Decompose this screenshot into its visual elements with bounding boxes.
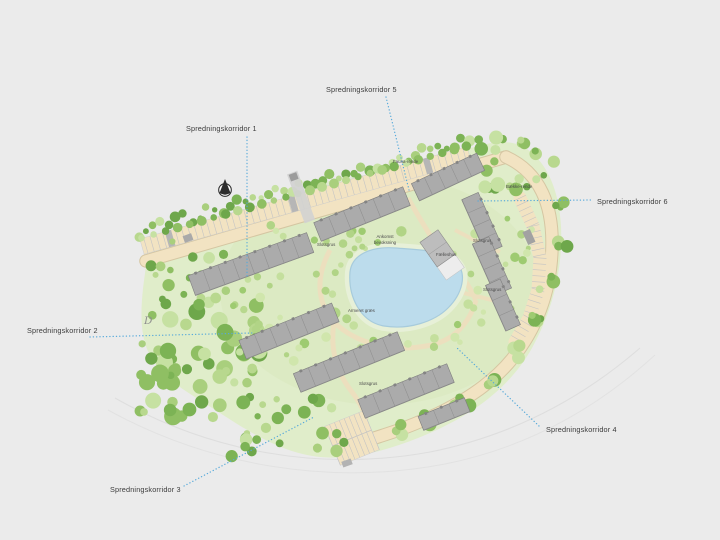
tree: [232, 194, 242, 204]
tree: [316, 427, 329, 440]
tree: [503, 261, 509, 267]
tree: [264, 190, 273, 199]
tree: [245, 202, 255, 212]
corridor-1-label: Spredningskorridor 1: [186, 124, 257, 133]
tree: [561, 240, 574, 253]
tree: [213, 398, 227, 412]
common-house-label: Fælleshus: [436, 252, 457, 257]
tree: [239, 287, 246, 294]
tree: [233, 206, 242, 215]
tree: [160, 343, 176, 359]
tree: [159, 296, 166, 303]
tree: [226, 450, 238, 462]
tree: [462, 141, 471, 150]
corridor-3-label: Spredningskorridor 3: [110, 485, 181, 494]
tree: [321, 332, 331, 342]
reinforced-grass-label: Armeret græs: [348, 308, 376, 313]
tree: [208, 412, 218, 422]
tree: [145, 393, 161, 409]
tree: [450, 333, 459, 342]
north-arrow-icon: [219, 179, 232, 196]
gravel-label: Slotsgrus: [317, 242, 336, 247]
tree: [434, 143, 441, 150]
gravel-label: Slotsgrus: [483, 287, 502, 292]
tree: [438, 149, 446, 157]
tree: [349, 321, 358, 330]
tree: [324, 169, 334, 179]
tree: [240, 442, 250, 452]
tree: [240, 306, 247, 313]
tree: [217, 324, 234, 341]
tree: [230, 378, 238, 386]
tree: [210, 293, 221, 304]
tree: [210, 214, 217, 221]
tree: [149, 221, 157, 229]
tree: [164, 404, 177, 417]
tree: [230, 303, 237, 310]
tree: [470, 304, 477, 311]
tree: [182, 364, 192, 374]
tree: [222, 287, 231, 296]
tree: [276, 439, 284, 447]
tree: [532, 147, 539, 154]
tree: [558, 196, 570, 208]
tree: [280, 233, 287, 240]
tree: [514, 174, 523, 183]
tree: [367, 170, 374, 177]
tree: [183, 403, 197, 417]
site-plan-svg: Spredningskorridor 1 Spredningskorridor …: [0, 0, 720, 540]
tree: [139, 340, 146, 347]
tree: [289, 356, 299, 366]
corridor-4-label: Spredningskorridor 4: [546, 425, 617, 434]
tree: [519, 256, 527, 264]
gravel-label: Slotsgrus: [473, 238, 492, 243]
tree: [136, 370, 146, 380]
tree: [219, 250, 228, 259]
tree: [276, 272, 284, 280]
tree: [261, 423, 271, 433]
tree: [162, 311, 178, 327]
gravel-label: Slotsgrus: [359, 381, 378, 386]
tree: [272, 412, 284, 424]
tree: [198, 347, 211, 360]
tree: [552, 202, 559, 209]
tree: [273, 228, 279, 234]
corridor-5-label: Spredningskorridor 5: [326, 85, 397, 94]
tree: [271, 185, 278, 192]
tree: [254, 413, 260, 419]
tree: [355, 173, 362, 180]
tree: [505, 216, 511, 222]
tree: [236, 395, 250, 409]
tree: [151, 365, 169, 383]
tree: [277, 315, 283, 321]
tree: [529, 312, 536, 319]
tree: [456, 134, 465, 143]
tree: [221, 209, 230, 218]
tree: [193, 299, 205, 311]
tree: [180, 319, 192, 331]
tree: [356, 162, 365, 171]
tree: [468, 271, 475, 278]
tree: [155, 217, 164, 226]
tree: [417, 143, 427, 153]
tree: [178, 209, 186, 217]
tree: [523, 249, 531, 257]
tree: [267, 283, 273, 289]
tree: [298, 406, 311, 419]
tree: [449, 145, 459, 155]
arrival-planting-label-2: bevoksning: [374, 240, 397, 245]
tree: [536, 285, 544, 293]
map-letter-d: D: [143, 315, 153, 327]
tree: [180, 291, 187, 298]
tree: [490, 145, 500, 155]
tree: [548, 156, 560, 168]
tree: [273, 396, 279, 402]
tree: [173, 223, 183, 233]
arrival-planting-label-1: Ankomst: [376, 234, 394, 239]
tree: [478, 180, 491, 193]
tree: [169, 238, 175, 244]
tree: [395, 419, 406, 430]
tree: [308, 394, 318, 404]
tree: [202, 203, 209, 210]
tree: [271, 197, 277, 203]
tree: [259, 401, 266, 408]
fauna-channel-label: Fauna-rende: [393, 159, 419, 164]
tree: [186, 220, 194, 228]
tree: [532, 175, 540, 183]
tree: [313, 443, 322, 452]
tree: [342, 314, 351, 323]
tree: [481, 309, 486, 314]
tree: [487, 375, 498, 386]
tree: [329, 179, 339, 189]
tree: [162, 227, 170, 235]
tree: [490, 177, 505, 192]
tree: [281, 404, 291, 414]
tree: [427, 153, 434, 160]
tree: [339, 438, 348, 447]
site-plan-page: Spredningskorridor 1 Spredningskorridor …: [0, 0, 720, 540]
tree: [510, 253, 519, 262]
tree: [255, 293, 265, 303]
tree: [427, 145, 434, 152]
tree: [317, 182, 327, 192]
tree: [162, 279, 174, 291]
tree: [454, 321, 461, 328]
tree: [153, 272, 159, 278]
tree: [355, 236, 362, 243]
tree: [212, 207, 217, 212]
tree: [359, 244, 365, 250]
tree: [396, 226, 406, 236]
tree: [404, 340, 412, 348]
tree: [252, 435, 261, 444]
tree: [150, 231, 157, 238]
tree: [313, 271, 320, 278]
tree: [284, 352, 289, 357]
tree: [247, 364, 257, 374]
tree: [188, 252, 198, 262]
corridor-2-label: Spredningskorridor 2: [27, 326, 98, 335]
tree: [145, 352, 157, 364]
tree: [540, 172, 547, 179]
tree: [249, 194, 256, 201]
tree: [358, 228, 365, 235]
tree: [322, 287, 330, 295]
tree: [477, 318, 485, 326]
tree: [547, 273, 555, 281]
tree: [197, 216, 207, 226]
tree: [295, 344, 302, 351]
tree: [167, 267, 174, 274]
tree: [489, 131, 503, 145]
tree: [430, 334, 439, 343]
tree: [517, 137, 524, 144]
tree: [212, 369, 227, 384]
tree: [146, 260, 157, 271]
tree: [266, 221, 275, 230]
tree: [332, 429, 341, 438]
tree: [377, 165, 387, 175]
tree: [352, 245, 358, 251]
tree: [305, 185, 315, 195]
tree: [490, 157, 498, 165]
tree: [342, 176, 350, 184]
tree: [143, 228, 149, 234]
tree: [430, 343, 438, 351]
tree: [338, 262, 344, 268]
corridor-6-label: Spredningskorridor 6: [597, 197, 668, 206]
tree: [329, 290, 336, 297]
tree: [473, 286, 482, 295]
tree: [339, 239, 347, 247]
tree: [330, 445, 342, 457]
tree: [346, 251, 354, 259]
tree: [140, 408, 148, 416]
tree: [193, 379, 208, 394]
tree: [156, 261, 166, 271]
tree: [282, 193, 289, 200]
tree: [327, 403, 336, 412]
tree: [332, 269, 339, 276]
tree: [203, 252, 215, 264]
tree: [242, 378, 252, 388]
tree: [513, 340, 525, 352]
tree: [138, 234, 145, 241]
tree: [257, 199, 267, 209]
tree: [195, 395, 208, 408]
stream-channel-label: Bække-rende: [506, 184, 533, 189]
